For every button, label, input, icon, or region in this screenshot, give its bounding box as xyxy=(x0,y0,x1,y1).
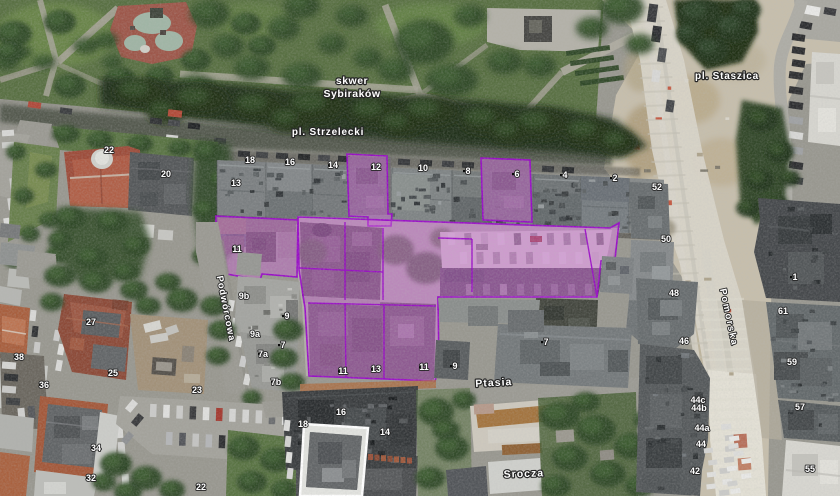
svg-text:22: 22 xyxy=(196,482,206,492)
svg-text:skwer: skwer xyxy=(336,75,368,87)
svg-text:16: 16 xyxy=(336,407,346,417)
svg-text:pl. Staszica: pl. Staszica xyxy=(695,71,759,82)
svg-text:34: 34 xyxy=(91,443,101,453)
svg-text:16: 16 xyxy=(285,157,295,167)
svg-text:Sybiraków: Sybiraków xyxy=(323,88,380,100)
svg-text:18: 18 xyxy=(245,155,255,165)
svg-text:1: 1 xyxy=(792,272,797,282)
svg-text:11: 11 xyxy=(338,366,348,376)
svg-text:32: 32 xyxy=(86,473,96,483)
svg-text:20: 20 xyxy=(161,169,171,179)
svg-text:44: 44 xyxy=(696,439,706,449)
svg-text:14: 14 xyxy=(328,160,338,170)
svg-text:10: 10 xyxy=(418,163,428,173)
svg-text:14: 14 xyxy=(380,427,390,437)
svg-text:9b: 9b xyxy=(239,291,250,301)
svg-text:59: 59 xyxy=(787,357,797,367)
svg-text:18: 18 xyxy=(298,419,308,429)
svg-text:4: 4 xyxy=(562,170,567,180)
svg-text:2: 2 xyxy=(612,173,617,183)
svg-text:27: 27 xyxy=(86,317,96,327)
svg-text:38: 38 xyxy=(14,352,24,362)
svg-text:Ptasia: Ptasia xyxy=(475,376,513,390)
svg-text:44a: 44a xyxy=(694,423,710,433)
svg-text:25: 25 xyxy=(108,368,118,378)
svg-text:7: 7 xyxy=(280,340,285,350)
svg-text:42: 42 xyxy=(690,466,700,476)
svg-text:44b: 44b xyxy=(691,403,707,413)
svg-text:11: 11 xyxy=(232,244,242,254)
svg-text:8: 8 xyxy=(465,166,470,176)
svg-text:23: 23 xyxy=(192,385,202,395)
svg-text:22: 22 xyxy=(104,145,114,155)
svg-text:57: 57 xyxy=(795,402,805,412)
svg-text:13: 13 xyxy=(231,178,241,188)
svg-text:52: 52 xyxy=(652,182,662,192)
svg-text:9: 9 xyxy=(452,361,457,371)
svg-text:9: 9 xyxy=(284,311,289,321)
svg-text:7: 7 xyxy=(543,337,548,347)
svg-text:11: 11 xyxy=(419,362,429,372)
svg-text:7a: 7a xyxy=(258,349,269,359)
svg-text:48: 48 xyxy=(669,288,679,298)
svg-text:6: 6 xyxy=(514,169,519,179)
svg-text:9a: 9a xyxy=(250,329,261,339)
svg-text:13: 13 xyxy=(371,364,381,374)
svg-text:12: 12 xyxy=(371,162,381,172)
svg-text:36: 36 xyxy=(39,380,49,390)
svg-text:55: 55 xyxy=(805,464,815,474)
svg-text:pl. Strzelecki: pl. Strzelecki xyxy=(292,127,364,138)
svg-text:7b: 7b xyxy=(271,377,282,387)
svg-text:Srocza: Srocza xyxy=(503,467,544,480)
svg-text:61: 61 xyxy=(778,306,788,316)
svg-text:50: 50 xyxy=(661,234,671,244)
svg-text:46: 46 xyxy=(679,336,689,346)
